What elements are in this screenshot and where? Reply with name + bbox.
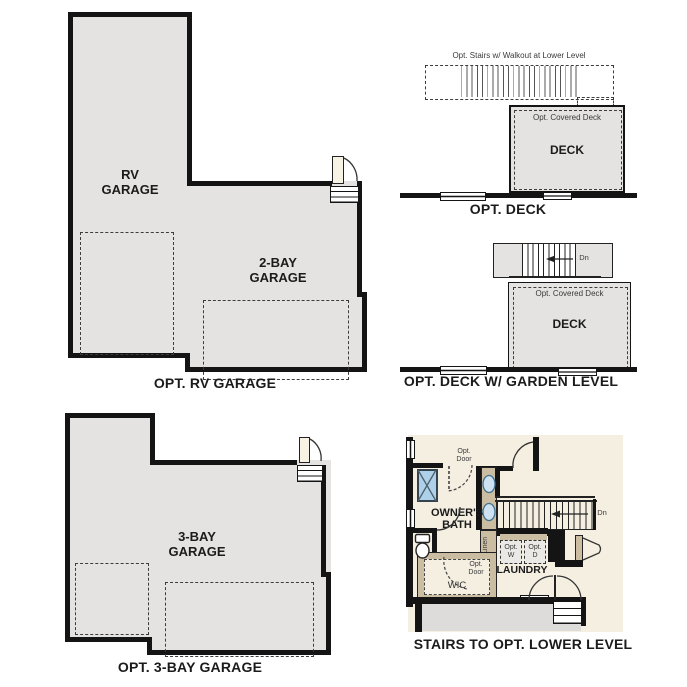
wall: [548, 530, 565, 562]
stair-treads: [497, 501, 594, 530]
wall: [495, 468, 500, 498]
plan-lower-level: Linen WIC Opt. Door Opt. Door OWNER'S BA…: [0, 0, 687, 687]
window: [406, 509, 415, 528]
floorplan-options-sheet: RV GARAGE 2-BAY GARAGE OPT. RV GARAGE Op…: [0, 0, 687, 687]
opt-door-top-label: Opt. Door: [450, 448, 478, 464]
wall: [415, 598, 422, 632]
down-label: Dn: [594, 509, 610, 518]
opt-washer-label: Opt. W: [501, 544, 521, 560]
door-jamb: [533, 437, 539, 471]
room-label-owners-bath: OWNER'S BATH: [419, 507, 495, 532]
room-label-laundry: LAUNDRY: [495, 565, 549, 577]
shower: [417, 469, 438, 502]
wall: [555, 560, 583, 567]
window: [406, 440, 415, 459]
room-label-wic: WIC: [424, 581, 490, 592]
wall: [581, 597, 586, 626]
garage-steps: [553, 601, 583, 624]
opt-door-wic-label: Opt. Door: [462, 561, 490, 577]
wall: [406, 463, 443, 468]
caption-lower-level: STAIRS TO OPT. LOWER LEVEL: [413, 637, 633, 653]
door-jamb: [575, 535, 583, 562]
stair-stringer-line: [495, 496, 595, 498]
opt-dryer-label: Opt. D: [525, 544, 545, 560]
